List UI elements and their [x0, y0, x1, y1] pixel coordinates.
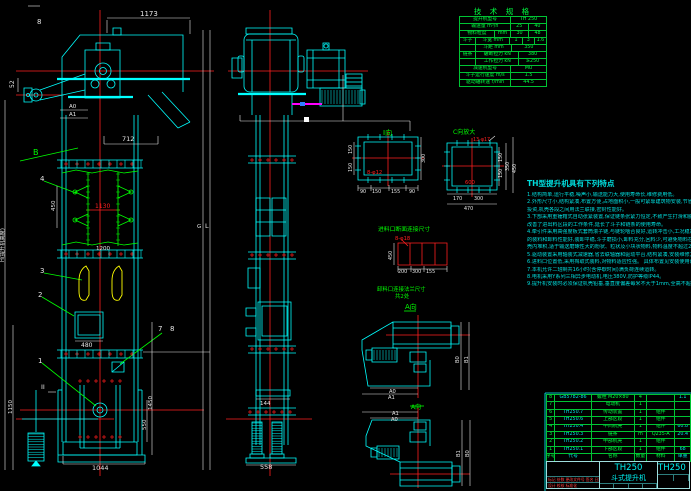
table-row: 链条破断拉力 kN380: [459, 51, 547, 58]
feature-line: 3.下部采用重锤箱式自动张紧装置,保证链条张紧力恒定,不致产生打滑和脱链,大大: [527, 214, 691, 221]
table-cell: 破断拉力 kN: [476, 52, 519, 58]
table-cell: 5: [547, 417, 555, 423]
table-cell: 1: [635, 439, 648, 445]
dim-label: 450: [512, 164, 518, 173]
dim-label: 300: [421, 154, 427, 163]
dim-label: B1: [456, 450, 462, 457]
dim-label: 480: [81, 342, 93, 349]
table-cell: mm: [495, 31, 511, 37]
table-cell: 4: [635, 395, 648, 401]
dim-label: 共2处: [395, 292, 410, 300]
dim-label: 8-φ12: [367, 170, 382, 176]
table-cell: Q235-A: [647, 432, 675, 438]
table-cell: 2: [547, 439, 555, 445]
table-cell: MU: [511, 66, 547, 72]
dim-label: 8: [37, 18, 41, 26]
parts-list-table: 8GB5782-86螺栓 M20×8041.17电动机16TH250.7传动装置…: [546, 394, 691, 462]
table-cell: 材料: [647, 454, 675, 460]
dim-label: 550: [142, 419, 148, 430]
table-cell: 1: [635, 417, 648, 423]
table-row: 3TH250.3链条mQ235-A20.4: [546, 431, 691, 438]
feature-line: 壳内堆积,适于输送磨琢性大的粉状、粒状及小块状物料,物料温度不超过250℃。: [527, 244, 691, 251]
title-block-grid: [658, 474, 689, 481]
table-row: 4TH250.4中间机壳1组件60.8: [546, 424, 691, 431]
table-cell: 组件: [647, 417, 675, 423]
table-cell: 1: [510, 38, 522, 44]
table-cell: 斗子: [460, 38, 476, 44]
table-cell: [647, 395, 675, 401]
title-block-center: TH250 斗式提升机: [600, 462, 658, 488]
table-cell: 数量: [635, 454, 648, 460]
table-row: 2TH250.2中部机壳1组件: [546, 438, 691, 445]
table-row: 8GB5782-86螺栓 M20×8041.1: [546, 394, 691, 401]
feature-line: 2.外形尺寸小,结构紧凑,布置方便,占地面积小,一般可紧靠建筑物安装,节省基建: [527, 199, 691, 206]
dim-label: B0: [465, 450, 471, 457]
bucket-profiles: [79, 266, 122, 300]
feature-line: 4.牵引件采用高强度板式套筒滚子链,与链轮啮合良好,运转冲击小,工况稳定。斗子: [527, 229, 691, 236]
table-cell: 驱动轴转速 r/min: [460, 80, 511, 86]
feature-line: 改善了进出料区段的工作条件,延长了斗子和链条的使用寿命。: [527, 222, 691, 229]
dim-label: A1: [388, 395, 395, 401]
dim-label: 进料口断面连接尺寸: [378, 225, 430, 233]
table-cell: 350: [512, 45, 547, 51]
dim-label: 200: [398, 269, 407, 275]
feature-line: 8.电机采用Y系列三相异步电动机,电压380V,防护等级IP44。: [527, 274, 691, 281]
revision-block: 标记 处数 更改文件号 签名 日期 设计 校核 标准化: [547, 462, 600, 488]
dim-label: 558: [260, 463, 272, 471]
table-cell: m: [635, 432, 648, 438]
table-cell: [555, 402, 592, 408]
table-cell: 代号: [555, 454, 592, 460]
dim-label: 450: [51, 200, 57, 211]
drawing-number: TH250: [658, 462, 689, 474]
table-cell: [460, 59, 476, 65]
table-row: 斗子运行速度 m/s1.5: [459, 72, 547, 79]
dim-label: 1173: [140, 10, 158, 18]
table-row: 1TH250.1下部区段1组件68: [546, 446, 691, 453]
table-cell: 60.8: [675, 425, 691, 431]
table-cell: 1.1: [675, 395, 691, 401]
table-cell: 40: [529, 24, 547, 30]
feature-line: 的装料和卸料性能好,装卸平稳,斗子磨损小,卸料充分,回料少,可避免物料在机: [527, 237, 691, 244]
dim-label: H(提升机高度): [0, 228, 6, 262]
dim-label: 150: [498, 153, 504, 162]
title-block-right: TH250: [658, 462, 689, 488]
table-cell: 链条: [460, 52, 476, 58]
dim-label: 155: [426, 269, 435, 275]
table-cell: [675, 439, 691, 445]
table-cell: 1: [635, 425, 648, 431]
table-cell: 7: [547, 402, 555, 408]
table-cell: [460, 45, 476, 51]
table-cell: 中部机壳: [592, 439, 635, 445]
table-cell: 物料粒度: [460, 31, 495, 37]
dim-label: C向放大: [453, 128, 475, 136]
table-cell: 1: [635, 447, 648, 453]
drawing-model: TH250: [600, 462, 657, 474]
dim-label: A向: [411, 403, 421, 411]
table-cell: [647, 402, 675, 408]
dim-label: 450: [388, 251, 394, 260]
feature-notes-body: 1.结构简单,运行平稳,噪声小,输送能力大,使用寿命长,维修费用低。2.外形尺寸…: [527, 192, 691, 289]
tech-table-body: 提升机型号TH 250输送量 m³/h2540物料粒度mm3048斗子斗宽 mm…: [459, 16, 547, 87]
table-cell: 上部区段: [592, 417, 635, 423]
dim-label: 1200: [96, 246, 110, 252]
feature-line: 投资,机壳各段之间用法兰联接,密封性能好。: [527, 207, 691, 214]
feature-notes: TH型提升机具有下列特点 1.结构简单,运行平稳,噪声小,输送能力大,使用寿命长…: [527, 178, 691, 289]
dim-label: 150: [372, 189, 381, 195]
table-cell: 组件: [647, 425, 675, 431]
dim-label: 90: [409, 189, 415, 195]
table-cell: TH 250: [511, 17, 547, 23]
table-cell: 30: [511, 31, 529, 37]
table-row: 减速机型号MU: [459, 65, 547, 72]
table-cell: 斗宽 mm: [476, 38, 511, 44]
table-cell: 下部区段: [592, 447, 635, 453]
cad-sheet: 1173852A0A1712B44501130120032480781IIH(提…: [0, 0, 691, 491]
dim-label: 4: [40, 175, 45, 183]
table-row: 5TH250.6上部区段1组件: [546, 416, 691, 423]
dim-label: A0: [391, 417, 398, 423]
title-block-grid: [600, 483, 657, 488]
table-cell: 输送量 m³/h: [460, 24, 511, 30]
table-cell: [675, 402, 691, 408]
table-cell: 1: [547, 447, 555, 453]
table-cell: TH250.2: [555, 439, 592, 445]
table-cell: 单重: [675, 454, 691, 460]
dim-label: A1: [69, 112, 76, 118]
dim-label: II: [41, 383, 45, 391]
table-cell: TH250.4: [555, 425, 592, 431]
dim-label: 1450: [148, 396, 154, 410]
dim-label: 1: [38, 357, 42, 365]
table-cell: 8: [547, 395, 555, 401]
dim-label: 600: [465, 180, 475, 186]
drawing-name: 斗式提升机: [600, 474, 657, 483]
dim-label: 1044: [92, 464, 109, 472]
feature-line: 5.驱动装置采用轴装式减速器,省去联轴器和驱动平台,结构紧凑,安装维修方便,运行…: [527, 252, 691, 259]
dim-label: B1: [464, 356, 470, 363]
table-row: 6TH250.7传动装置1组件: [546, 409, 691, 416]
table-cell: 斗子运行速度 m/s: [460, 73, 511, 79]
dim-label: 8-φ18: [395, 236, 410, 242]
table-cell: 电动机: [592, 402, 635, 408]
table-cell: 传动装置: [592, 410, 635, 416]
dim-label: G: [197, 224, 201, 230]
parts-list-body: 8GB5782-86螺栓 M20×8041.17电动机16TH250.7传动装置…: [546, 394, 691, 462]
tech-table-title: 技 术 规 格: [459, 7, 547, 16]
table-cell: 中间机壳: [592, 425, 635, 431]
dim-label: 150: [348, 163, 354, 172]
table-cell: 提升机型号: [460, 17, 511, 23]
table-cell: 链条: [592, 432, 635, 438]
table-cell: 25: [511, 24, 529, 30]
table-row: 斗子斗宽 mm131.6: [459, 37, 547, 44]
dim-label: B: [33, 148, 39, 157]
table-cell: [675, 410, 691, 416]
title-block: 标记 处数 更改文件号 签名 日期 设计 校核 标准化 TH250 斗式提升机 …: [546, 461, 690, 489]
table-cell: 3: [547, 432, 555, 438]
table-row: 7电动机1: [546, 401, 691, 408]
table-cell: 组件: [647, 410, 675, 416]
feature-notes-title: TH型提升机具有下列特点: [527, 178, 691, 189]
table-row: 驱动轴转速 r/min44.5: [459, 79, 547, 86]
dim-label: 470: [464, 206, 473, 212]
dim-label: 2: [38, 291, 42, 299]
feature-line: 1.结构简单,运行平稳,噪声小,输送能力大,使用寿命长,维修费用低。: [527, 192, 691, 199]
dim-label: 170: [453, 196, 462, 202]
table-cell: TH250.7: [555, 410, 592, 416]
table-cell: 44.5: [511, 80, 547, 86]
dim-label: 8: [170, 325, 174, 333]
table-cell: 3: [523, 38, 535, 44]
dim-label: A0: [69, 104, 77, 110]
table-cell: 组件: [647, 439, 675, 445]
table-cell: 68: [675, 447, 691, 453]
table-row: 提升机型号TH 250: [459, 16, 547, 23]
dim-label: 712: [122, 135, 134, 143]
dim-label: 3: [40, 267, 44, 275]
dim-label: 300: [412, 269, 421, 275]
table-row: 物料粒度mm3048: [459, 30, 547, 37]
table-cell: ≥250: [519, 59, 547, 65]
revision-row: 设计 校核 标准化: [547, 482, 599, 488]
table-cell: 380: [519, 52, 547, 58]
highlight-marks: [292, 102, 322, 122]
table-cell: 1: [635, 402, 648, 408]
feature-line: 9.提升机安装时必须保证机壳铅垂,垂直度偏差每米不大于1mm,全高不超过8mm。: [527, 281, 691, 288]
dim-label: 卸料口连接法兰尺寸: [377, 285, 426, 293]
dim-label: 300: [474, 196, 483, 202]
table-cell: 1.6: [535, 38, 547, 44]
dim-label: 1150: [8, 400, 14, 414]
dim-label: 90: [360, 189, 366, 195]
table-row: 输送量 m³/h2540: [459, 23, 547, 30]
table-cell: 减速机型号: [460, 66, 511, 72]
dim-label: A向: [405, 302, 417, 311]
dim-label: L: [205, 222, 209, 230]
dim-label: 150: [498, 169, 504, 178]
dim-label: 52: [9, 80, 16, 88]
table-cell: 组件: [647, 447, 675, 453]
tech-spec-table: 技 术 规 格 提升机型号TH 250输送量 m³/h2540物料粒度mm304…: [459, 7, 547, 87]
feature-line: 7.本机允许二班制共16小时(含停歇时间)满负荷连续运转。: [527, 267, 691, 274]
feature-line: 6.进料口位置低,采用掏取式装料,对物料适应性强。 具体布置见安装使用说明书: [527, 259, 691, 266]
table-row: 斗距 mm350: [459, 44, 547, 51]
table-row: 工作拉力 kN≥250: [459, 58, 547, 65]
table-cell: 名称: [592, 454, 635, 460]
dim-label: 144: [260, 401, 271, 407]
table-cell: [675, 417, 691, 423]
table-cell: TH250.3: [555, 432, 592, 438]
table-cell: GB5782-86: [555, 395, 592, 401]
table-cell: 1.5: [511, 73, 547, 79]
dim-label: 13-φ17: [473, 137, 490, 143]
dim-label: B0: [455, 356, 461, 363]
table-row: 序号代号名称数量材料单重: [546, 453, 691, 460]
table-cell: 4: [547, 425, 555, 431]
table-cell: TH250.1: [555, 447, 592, 453]
dim-label: I向: [383, 128, 392, 137]
table-cell: 48: [529, 31, 547, 37]
table-cell: 6: [547, 410, 555, 416]
dim-label: 155: [391, 189, 400, 195]
table-cell: 工作拉力 kN: [476, 59, 519, 65]
table-cell: 螺栓 M20×80: [592, 395, 635, 401]
table-cell: 序号: [547, 454, 555, 460]
table-cell: 斗距 mm: [476, 45, 511, 51]
table-cell: 1: [635, 410, 648, 416]
table-cell: TH250.6: [555, 417, 592, 423]
dim-label: 150: [348, 145, 354, 154]
dim-label: 350: [505, 162, 511, 171]
section-and-leaders: [20, 148, 424, 406]
table-cell: 20.4: [675, 432, 691, 438]
dim-label: 7: [158, 325, 162, 333]
dim-label: 1130: [95, 203, 110, 210]
